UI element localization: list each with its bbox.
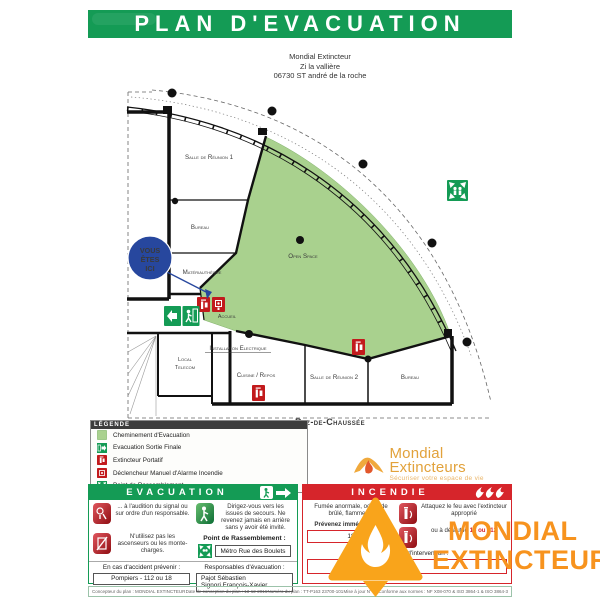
incendie-title: INCENDIE — [308, 487, 472, 498]
exit-man-icon — [196, 503, 214, 524]
flames-icon — [472, 486, 506, 499]
assembly-value-box: Métro Rue des Boulets — [215, 545, 290, 557]
evacuation-header: EVACUATION — [89, 485, 297, 500]
assembly-label: Point de Rassemblement : — [196, 535, 293, 542]
manual-alarm-icon — [212, 297, 225, 312]
legend-title: LÉGENDE — [91, 421, 307, 429]
incendie-step-attack: Attaquez le feu avec l'extincteur approp… — [399, 503, 507, 524]
evacuation-plan-sheet: PLAN D'EVACUATION Mondial Extincteur Zi … — [0, 0, 600, 600]
manual-alarm-icon — [97, 468, 107, 478]
footer-date: Date de conception du plan : 13-12-2016 — [186, 589, 268, 594]
brand-tagline: Sécuriser votre espace de vie — [389, 475, 522, 482]
footer-revision: Mise à jour N° : 1 — [344, 589, 379, 594]
extinguisher-icon — [252, 385, 265, 401]
extinguisher-icon — [399, 527, 417, 548]
legend-item: Déclencheur Manuel d'Alarme Incendie — [91, 467, 307, 480]
incendie-step-fallback: ou à défaut le 18 ou 112 — [399, 527, 507, 548]
footer-number: Numéro du plan : TT-P163 23700-101 — [268, 589, 344, 594]
intervention-block: Responsables d'intervention : — [303, 548, 511, 574]
no-elevator-icon — [93, 533, 111, 554]
incendie-header: INCENDIE — [303, 485, 511, 500]
footer-norms: Conforme aux normes : NF X08-070 & ISO 3… — [378, 589, 508, 594]
fine-print: Concepteur du plan : MONDIAL EXTINCTEUR … — [88, 586, 512, 597]
brand-flame-icon — [352, 451, 385, 479]
brand-logo: Mondial Extincteurs Sécuriser votre espa… — [352, 447, 522, 482]
extinguisher-icon — [399, 503, 417, 524]
intervention-value-box — [307, 559, 507, 574]
extinguisher-icon — [352, 339, 365, 355]
final-exit-icon — [164, 306, 200, 326]
assembly-point-icon — [198, 544, 212, 558]
final-exit-icon — [97, 443, 107, 453]
room-label-accueil: Accueil — [218, 314, 237, 320]
room-label-materiautheque: Matériauthèque — [183, 269, 222, 276]
exit-man-icon — [260, 486, 273, 499]
legend-item: Extincteur Portatif — [91, 454, 307, 467]
room-label-cuisine-repos: Cuisine / Repos — [237, 372, 276, 379]
room-label-local-telecom: Telecom — [175, 365, 195, 371]
incendie-panel: INCENDIE Fumée anormale, odeur de brûlé,… — [302, 484, 512, 584]
room-label-installation-electrique: Installation Electrique — [209, 345, 267, 352]
extinguisher-icon — [97, 455, 107, 465]
assembly-point-icon — [447, 180, 468, 201]
room-label-local-telecom: Local — [178, 357, 193, 363]
warn-number-box: 18 — [307, 530, 395, 543]
accident-value-box: Pompiers - 112 ou 18 — [93, 573, 190, 585]
incendie-alert-block: Fumée anormale, odeur de brûlé, flammes … — [307, 503, 395, 548]
legend-item: Evacuation Sortie Finale — [91, 442, 307, 455]
evacuation-step-signal: ... à l'audition du signal ou sur ordre … — [93, 503, 190, 531]
room-label-open-space: Open Space — [288, 253, 318, 260]
arrow-right-icon — [276, 487, 292, 499]
svg-text:ICI: ICI — [145, 264, 154, 273]
room-label-salle-reunion-1: Salle de Réunion 1 — [185, 154, 234, 161]
evacuation-path-swatch — [97, 430, 107, 440]
brand-name: Mondial Extincteurs — [389, 447, 522, 475]
room-label-bureau-2: Bureau — [401, 374, 419, 381]
evacuation-step-exits: Dirigez-vous vers les issues de secours.… — [196, 503, 293, 531]
evacuation-title: EVACUATION — [94, 487, 260, 498]
legend-item: Cheminement d'Evacuation — [91, 429, 307, 442]
stairwell — [128, 336, 156, 416]
evacuation-step-elevators: N'utilisez pas les ascenseurs ou les mon… — [93, 533, 190, 558]
svg-text:VOUS: VOUS — [140, 246, 161, 255]
room-label-bureau-1: Bureau — [191, 224, 209, 231]
alarm-signal-icon — [93, 503, 111, 524]
assembly-point-block: Point de Rassemblement : Métro Rue des B… — [196, 533, 293, 558]
legend: LÉGENDE Cheminement d'Evacuation Evacuat… — [90, 420, 308, 493]
evacuation-panel: EVACUATION ... à l' — [88, 484, 298, 584]
svg-text:ÊTES: ÊTES — [141, 255, 160, 264]
footer-designer: Concepteur du plan : MONDIAL EXTINCTEUR — [92, 589, 185, 594]
room-label-salle-reunion-2: Salle de Réunion 2 — [310, 374, 359, 381]
